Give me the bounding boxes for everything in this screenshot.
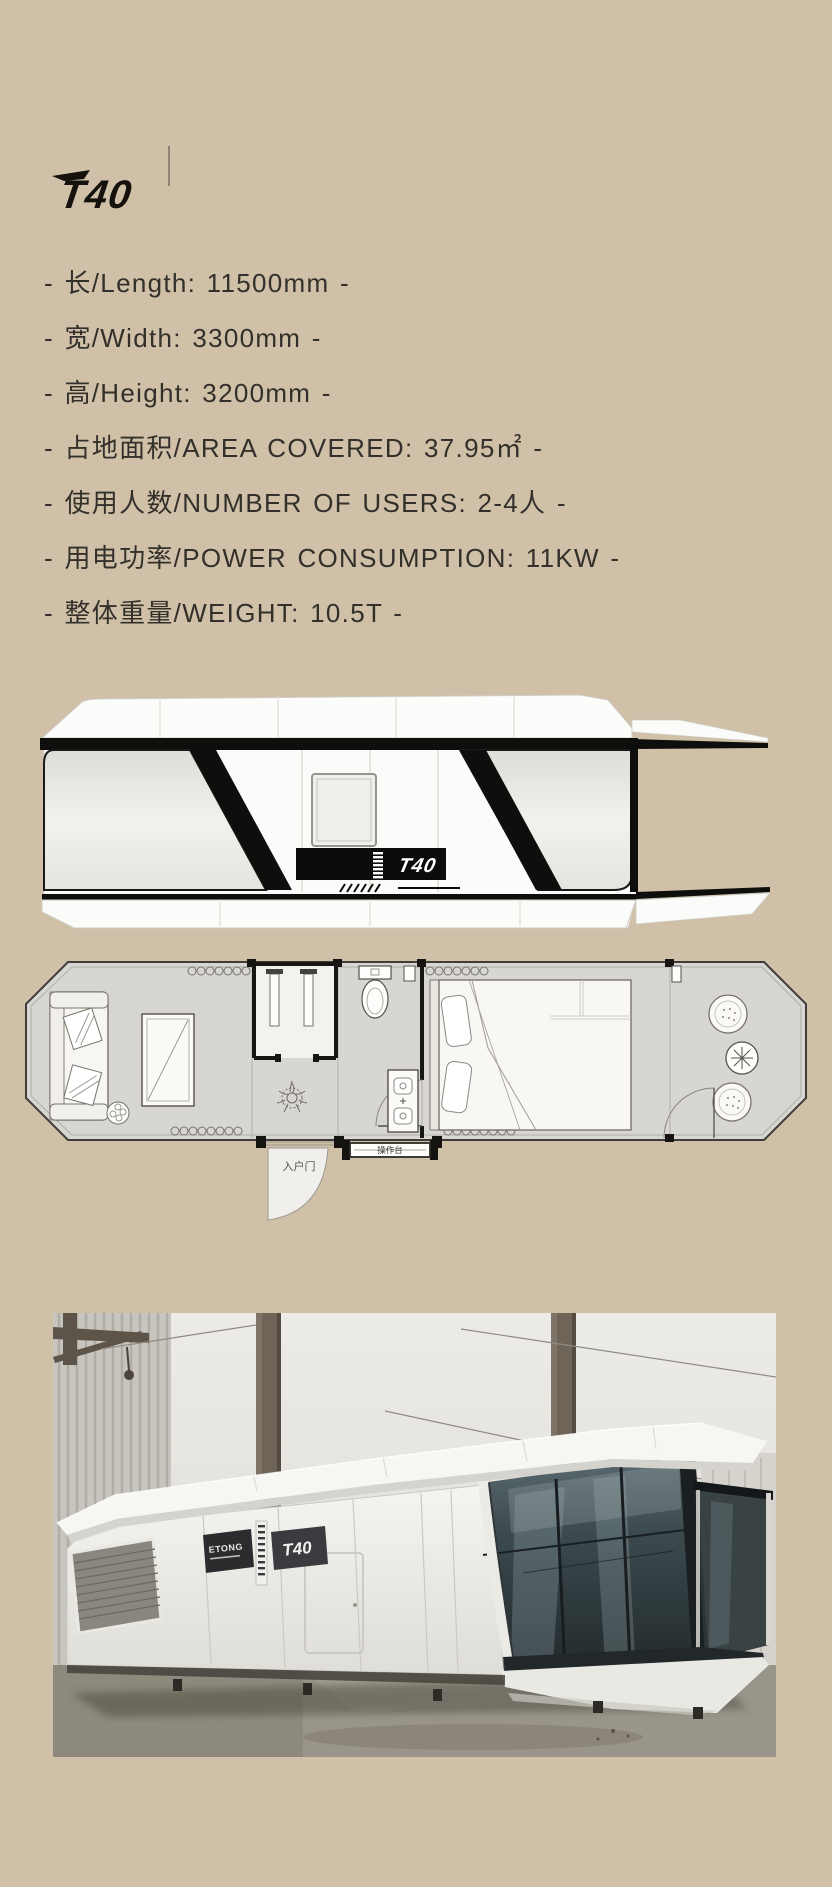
skirt-line — [42, 894, 636, 900]
balcony-railing — [693, 1481, 773, 1661]
floorplan-drawing: 入户门 操作台 — [20, 952, 812, 1256]
logo-text: T40 — [57, 172, 135, 217]
photo-model-label: T40 — [281, 1538, 313, 1560]
spec-weight: - 整体重量/WEIGHT: 10.5T - — [44, 586, 620, 641]
skirt-band — [42, 900, 636, 928]
wall-unit — [672, 966, 681, 982]
cabinet — [142, 1014, 194, 1106]
spec-height: - 高/Height: 3200mm - — [44, 366, 620, 421]
spec-width: - 宽/Width: 3300mm - — [44, 311, 620, 366]
glass-room — [481, 1451, 709, 1679]
lounge-chair-bottom — [713, 1083, 751, 1121]
spec-area: - 占地面积/AREA COVERED: 37.95㎡ - — [44, 421, 620, 476]
vanity — [388, 1070, 418, 1132]
flower-table — [107, 1102, 129, 1124]
entry-door-swing: 入户门 — [268, 1148, 328, 1220]
spec-power: - 用电功率/POWER CONSUMPTION: 11KW - — [44, 531, 620, 586]
lounge-chair-top — [709, 995, 747, 1033]
shower-panel — [270, 974, 279, 1026]
elevation-model-badge: T40 — [396, 855, 438, 877]
elevation-drawing: T40 — [40, 686, 806, 934]
round-table — [726, 1042, 758, 1074]
capsule-photo: ETONG T40 — [53, 1313, 776, 1757]
balcony-threshold — [266, 1142, 334, 1145]
shower-panel — [304, 974, 313, 1026]
rear-window — [71, 1539, 161, 1633]
balcony-roof — [632, 720, 768, 742]
spec-users: - 使用人数/NUMBER OF USERS: 2-4人 - — [44, 476, 620, 531]
door-window — [312, 774, 376, 846]
elevation-roof — [42, 695, 632, 738]
entry-door-label: 入户门 — [283, 1159, 316, 1173]
body-right-edge — [630, 738, 638, 892]
brand-logo: T40 — [50, 166, 200, 220]
counter-label: 操作台 — [377, 1145, 403, 1155]
spec-list: - 长/Length: 11500mm - - 宽/Width: 3300mm … — [44, 256, 620, 641]
counter-bar: 操作台 — [342, 1140, 438, 1160]
bed — [430, 980, 631, 1130]
sofa — [50, 992, 108, 1120]
wall-fixture — [404, 966, 415, 981]
brand-divider — [168, 146, 170, 186]
spec-length: - 长/Length: 11500mm - — [44, 256, 620, 311]
poster: T40 - 长/Length: 11500mm - - 宽/Width: 330… — [0, 0, 832, 1887]
shower-room — [254, 964, 336, 1062]
window-header-band — [40, 738, 632, 750]
